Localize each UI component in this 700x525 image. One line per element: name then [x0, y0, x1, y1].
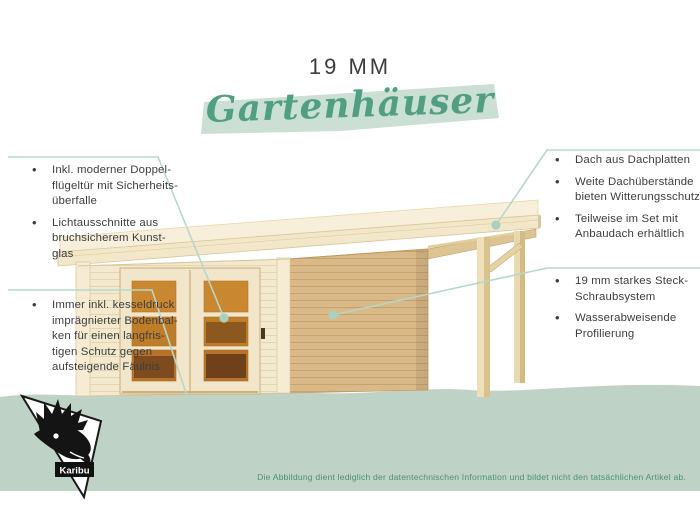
callout-left-top: Inkl. moderner Doppel- flügeltür mit Sic…	[30, 163, 182, 269]
roof-end-cap	[538, 215, 541, 228]
callout-item: Weite Dachüberstände bieten Witterungssc…	[553, 175, 700, 206]
door-handle	[261, 328, 265, 339]
callout-item: 19 mm starkes Steck- Schraubsystem	[553, 274, 700, 305]
side-wall-shading	[416, 250, 428, 390]
callout-item-text: Dach aus Dachplatten	[575, 154, 690, 166]
callout-item: Immer inkl. kesseldruck imprägnierter Bo…	[30, 298, 182, 376]
door-glass-reflection	[206, 322, 246, 343]
callout-item-text: Wasserabweisende Profilierung	[575, 312, 676, 340]
callout-item: Dach aus Dachplatten	[553, 153, 700, 169]
callout-item-text: 19 mm starkes Steck- Schraubsystem	[575, 275, 688, 303]
callout-right-bottom: 19 mm starkes Steck- Schraubsystem Wasse…	[553, 274, 700, 348]
callout-dot-wall	[328, 310, 337, 319]
callout-item-text: Inkl. moderner Doppel- flügeltür mit Sic…	[52, 164, 178, 207]
side-wall	[289, 249, 428, 393]
callout-item: Teilweise im Set mit Anbaudach erhältlic…	[553, 212, 700, 243]
callout-item: Lichtausschnitte aus bruchsicherem Kunst…	[30, 216, 182, 263]
disclaimer-text: Die Abbildung dient lediglich der datent…	[0, 472, 686, 482]
callout-item: Wasserabweisende Profilierung	[553, 311, 700, 342]
canopy-post-rear	[514, 231, 525, 383]
callout-item-text: Lichtausschnitte aus bruchsicherem Kunst…	[52, 217, 166, 260]
callout-item-text: Weite Dachüberstände bieten Witterungssc…	[575, 176, 700, 204]
callout-dot-roof	[491, 220, 500, 229]
callout-item-text: Immer inkl. kesseldruck imprägnierter Bo…	[52, 299, 178, 373]
callout-dot-door	[219, 313, 228, 322]
callout-item: Inkl. moderner Doppel- flügeltür mit Sic…	[30, 163, 182, 210]
callout-left-bottom: Immer inkl. kesseldruck imprägnierter Bo…	[30, 298, 182, 382]
canopy-post-front	[477, 237, 490, 397]
corner-trim-right	[277, 258, 290, 393]
callout-right-top: Dach aus Dachplatten Weite Dachüberständ…	[553, 153, 700, 249]
door-glass-reflection	[206, 354, 246, 378]
callout-item-text: Teilweise im Set mit Anbaudach erhältlic…	[575, 213, 684, 241]
page: Karibu 19 MM Gartenhäuser Inkl. moderner…	[0, 0, 700, 525]
